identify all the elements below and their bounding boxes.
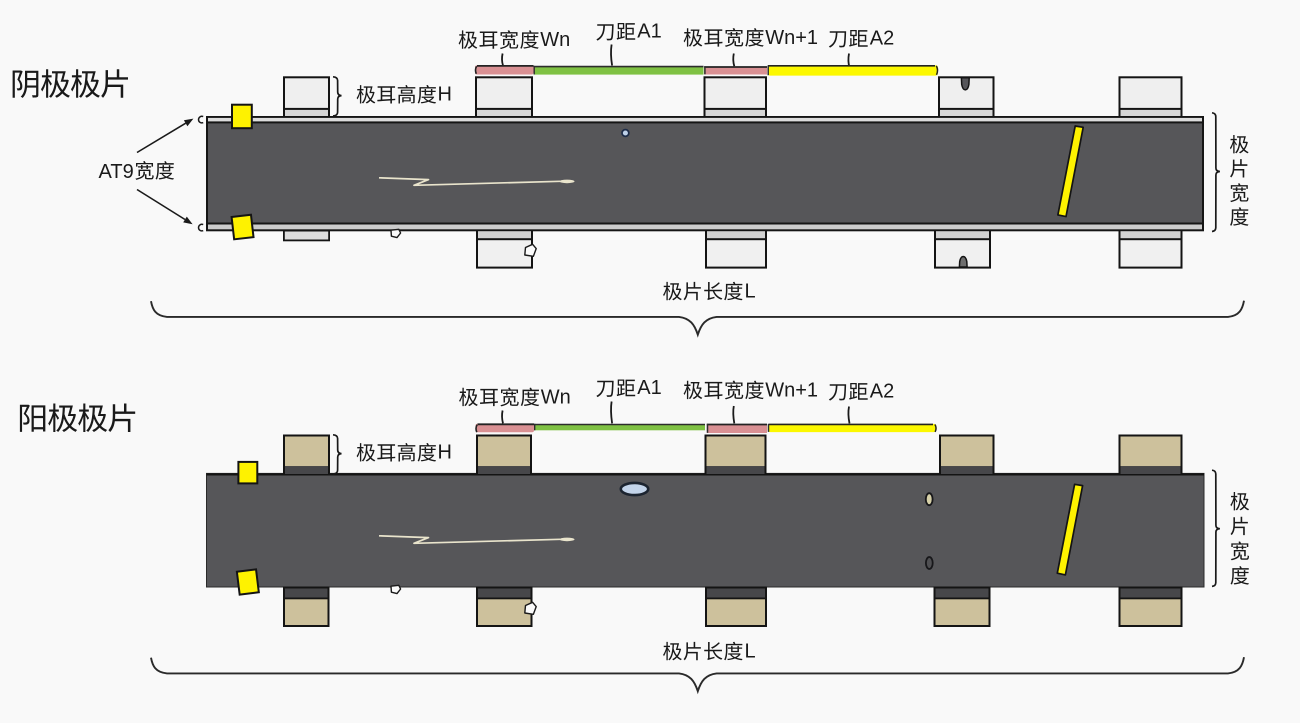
svg-text:A1: A1	[637, 377, 661, 399]
svg-text:A1: A1	[637, 21, 661, 43]
svg-text:L: L	[745, 641, 756, 663]
svg-text:Wn: Wn	[541, 386, 571, 408]
svg-text:H: H	[438, 442, 452, 464]
svg-text:A2: A2	[870, 381, 894, 403]
svg-text:AT9: AT9	[99, 161, 134, 183]
svg-text:A2: A2	[870, 28, 894, 50]
svg-text:Wn+1: Wn+1	[765, 27, 818, 49]
svg-text:L: L	[745, 281, 756, 303]
svg-text:Wn+1: Wn+1	[765, 379, 818, 401]
svg-text:Wn: Wn	[540, 29, 570, 51]
svg-text:H: H	[438, 84, 452, 106]
